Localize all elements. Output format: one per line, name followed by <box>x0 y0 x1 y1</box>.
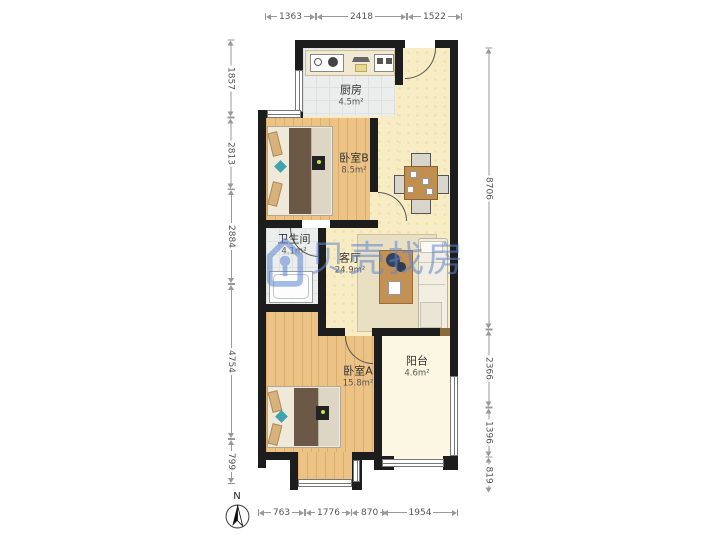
room-label-bedroom-b: 卧室B 8.5m² <box>339 151 369 176</box>
wall <box>370 118 378 192</box>
dimension-bottom-3: 870 <box>352 507 382 518</box>
wall <box>450 48 458 338</box>
window <box>353 460 360 482</box>
dimension-left-3: 2884 <box>226 189 237 284</box>
basin-icon <box>328 57 338 67</box>
table-box <box>388 281 401 295</box>
blanket <box>289 128 311 214</box>
window <box>267 110 301 118</box>
window <box>382 459 444 467</box>
burner-icon <box>386 58 392 64</box>
dimension-right-2: 2366 <box>484 330 495 408</box>
north-indicator: N <box>222 492 252 534</box>
plate-icon <box>422 178 429 185</box>
wall <box>258 220 302 228</box>
dimension-top-2: 2418 <box>316 11 407 22</box>
room-label-bathroom: 卫生间 4.1m² <box>278 232 311 257</box>
dimension-top-1: 1363 <box>265 11 316 22</box>
door-opening <box>405 40 435 48</box>
plate-icon <box>407 186 414 193</box>
range-hood-icon <box>352 57 370 62</box>
bed-tray-dot <box>321 410 325 414</box>
north-label: N <box>222 492 252 502</box>
wall <box>290 452 298 490</box>
wall <box>374 328 382 470</box>
wall <box>330 220 378 228</box>
room-label-balcony: 阳台 4.6m² <box>404 354 429 379</box>
wall <box>443 456 458 470</box>
north-arrow-icon <box>224 503 251 530</box>
dimension-left-5: 799 <box>226 439 237 484</box>
bay-window-floor <box>298 452 352 480</box>
sofa-chaise <box>420 302 442 328</box>
wall <box>318 228 326 336</box>
sofa-cushion-line <box>419 284 445 285</box>
wall <box>258 304 326 312</box>
sofa-cushion <box>420 241 443 253</box>
dimension-top-3: 1522 <box>407 11 462 22</box>
window <box>450 376 458 456</box>
dimension-bottom-2: 1776 <box>305 507 352 518</box>
room-label-bedroom-a: 卧室A 15.8m² <box>343 364 374 389</box>
sofa-cushion-line <box>419 262 445 263</box>
window <box>295 70 303 112</box>
window <box>298 479 352 487</box>
wall-column <box>440 328 450 336</box>
dimension-right-1: 8706 <box>484 48 495 330</box>
wall <box>395 48 403 85</box>
wall <box>258 118 266 468</box>
dimension-left-2: 2813 <box>226 118 237 190</box>
burner-icon <box>377 58 383 64</box>
door-opening <box>302 220 330 228</box>
range-hood-icon <box>355 64 367 72</box>
bed-tray-dot <box>317 160 321 164</box>
dimension-right-3: 1396 <box>484 408 495 458</box>
plate-icon <box>410 171 417 178</box>
bathtub-inner <box>273 274 309 299</box>
room-label-kitchen: 厨房 4.5m² <box>338 83 363 108</box>
dimension-left-4: 4754 <box>226 284 237 439</box>
blanket <box>294 388 318 446</box>
faucet-icon <box>314 58 322 66</box>
room-label-living: 客厅 24.9m² <box>335 251 366 276</box>
table-decor <box>396 262 406 272</box>
floor-plan-page: 厨房 4.5m² 卧室B 8.5m² 卫生间 4.1m² 客厅 24.9m² 卧… <box>0 0 720 540</box>
wall <box>318 328 345 336</box>
wall <box>450 336 458 376</box>
dimension-bottom-1: 763 <box>258 507 305 518</box>
dimension-right-4: 819 <box>484 458 495 492</box>
dining-chair <box>411 198 431 214</box>
dimension-bottom-4: 1954 <box>382 507 458 518</box>
bed-runner <box>311 128 331 214</box>
plate-icon <box>426 188 433 195</box>
dimension-left-1: 1857 <box>226 40 237 118</box>
